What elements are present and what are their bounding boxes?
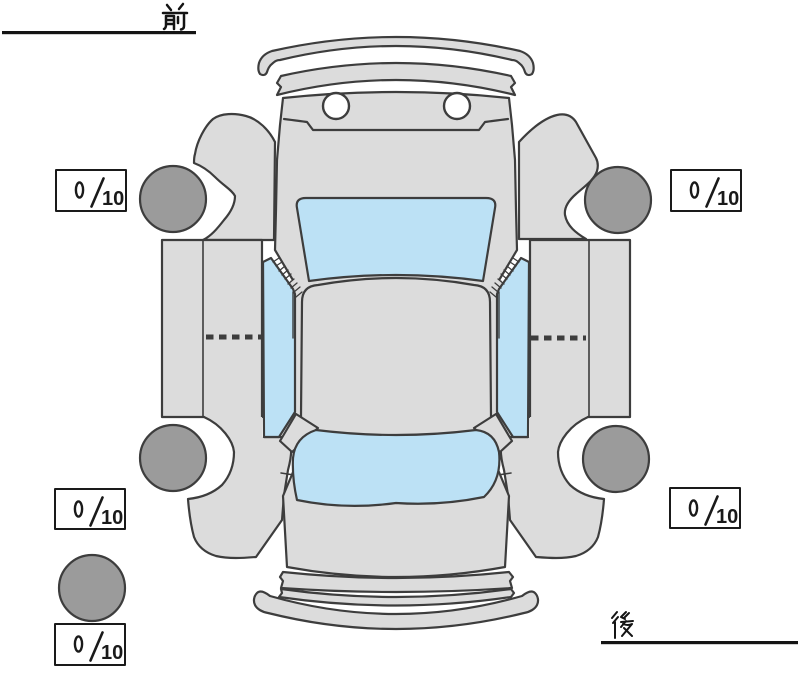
svg-text:10: 10 bbox=[101, 642, 123, 664]
svg-text:10: 10 bbox=[716, 506, 738, 528]
svg-text:10: 10 bbox=[717, 188, 739, 210]
svg-text:10: 10 bbox=[101, 507, 123, 529]
svg-text:10: 10 bbox=[102, 188, 124, 210]
